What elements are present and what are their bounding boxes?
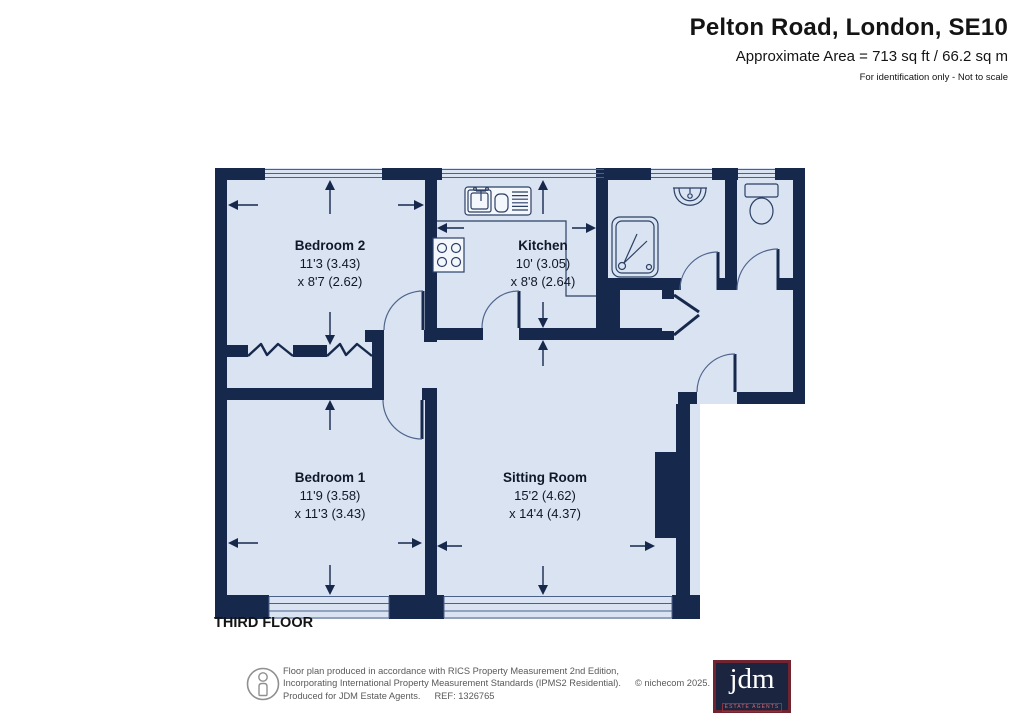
footer-line2: Incorporating International Property Mea… <box>283 678 621 688</box>
room-dimension: x 8'8 (2.64) <box>448 273 638 291</box>
footer-line1: Floor plan produced in accordance with R… <box>283 665 710 677</box>
footer-line3: Produced for JDM Estate Agents. <box>283 691 420 701</box>
room-label-sitting-room: Sitting Room 15'2 (4.62) x 14'4 (4.37) <box>450 469 640 523</box>
room-dimension: 11'9 (3.58) <box>235 487 425 505</box>
logo-tagline: ESTATE AGENTS <box>722 703 783 712</box>
room-name: Sitting Room <box>450 469 640 487</box>
footer-line3-row: Produced for JDM Estate Agents.REF: 1326… <box>283 690 710 702</box>
room-name: Bedroom 2 <box>235 237 425 255</box>
room-name: Bedroom 1 <box>235 469 425 487</box>
logo-text: jdm <box>716 664 788 695</box>
jdm-estate-agents-logo: jdm ESTATE AGENTS <box>713 660 791 713</box>
room-name: Kitchen <box>448 237 638 255</box>
room-label-kitchen: Kitchen 10' (3.05) x 8'8 (2.64) <box>448 237 638 291</box>
floorplan-page: Pelton Road, London, SE10 Approximate Ar… <box>0 0 1020 721</box>
room-dimension: 15'2 (4.62) <box>450 487 640 505</box>
footer-disclaimer: Floor plan produced in accordance with R… <box>283 665 710 702</box>
room-dimension: 11'3 (3.43) <box>235 255 425 273</box>
footer-line2-row: Incorporating International Property Mea… <box>283 677 710 689</box>
room-dimension: x 14'4 (4.37) <box>450 505 640 523</box>
room-dimension: x 8'7 (2.62) <box>235 273 425 291</box>
rics-person-icon <box>245 663 281 705</box>
footer-copyright: © nichecom 2025. <box>635 678 710 688</box>
footer-ref: REF: 1326765 <box>434 691 494 701</box>
room-label-bedroom2: Bedroom 2 11'3 (3.43) x 8'7 (2.62) <box>235 237 425 291</box>
floor-plan <box>0 0 1020 721</box>
room-dimension: x 11'3 (3.43) <box>235 505 425 523</box>
kitchen-sink-icon <box>465 187 531 215</box>
floor-label: THIRD FLOOR <box>214 615 313 631</box>
room-dimension: 10' (3.05) <box>448 255 638 273</box>
room-label-bedroom1: Bedroom 1 11'9 (3.58) x 11'3 (3.43) <box>235 469 425 523</box>
